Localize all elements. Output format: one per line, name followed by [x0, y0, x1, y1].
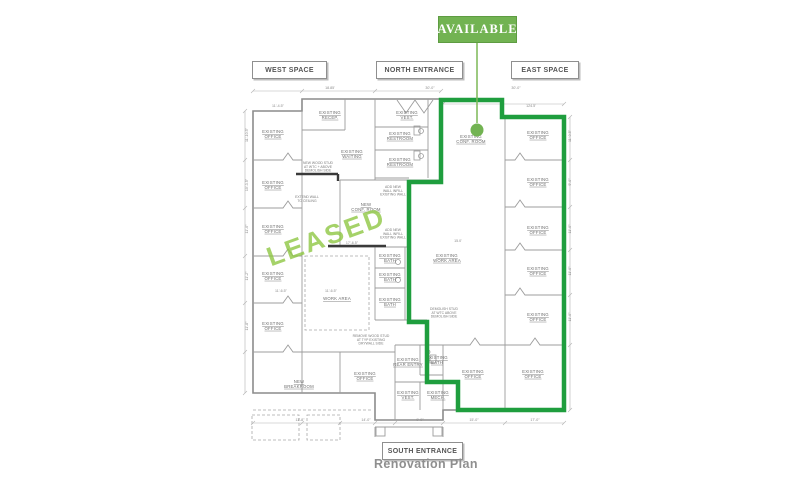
room-label: EXISTINGRESTROOM [387, 157, 414, 167]
dimension-label: 18.85' [325, 86, 335, 90]
room-label: EXISTINGOFFICE [354, 371, 376, 381]
dimension-label: 124.5' [526, 104, 536, 108]
room-label: EXISTINGOFFICE [522, 369, 544, 379]
dimension-label: 11'-10.5" [245, 127, 249, 142]
dimension-label: 9'-0" [568, 178, 572, 186]
room-label: EXISTINGRECEP. [319, 110, 341, 120]
room-label: EXISTINGOFFICE [527, 130, 549, 140]
dimension-label: 10'-3.5" [245, 178, 249, 191]
dimension-label: 15.0' [454, 239, 462, 243]
room-label: EXISTINGMECH. [427, 390, 449, 400]
dimension-label: 11'-8" [296, 418, 306, 422]
dimension-label: 11'-0" [245, 224, 249, 234]
dimension-label: 14'-0" [361, 418, 371, 422]
room-label: EXISTINGWAITING [341, 149, 363, 159]
room-label: EXISTINGOFFICE [527, 225, 549, 235]
dimension-label: 11'-6.5" [275, 289, 288, 293]
dimension-label: 9'-0" [416, 418, 424, 422]
plan-note: NEW WOOD STUDAT WTC + ABOVEDEMOLISH SIDE [303, 161, 333, 173]
dimension-label: 11'-8" [245, 321, 249, 331]
room-label: EXISTINGREAR ENTRY [393, 357, 423, 367]
room-label: EXISTINGRESTROOM [387, 131, 414, 141]
room-label: WORK AREA [323, 296, 351, 301]
south-entrance-porch [375, 427, 443, 437]
room-label: EXISTINGVEST. [397, 390, 419, 400]
dimension-label: 17'-0" [530, 418, 540, 422]
dashed-outlines [252, 256, 372, 440]
room-label: EXISTINGOFFICE [462, 369, 484, 379]
room-label: EXISTINGOFFICE [527, 312, 549, 322]
room-label: EXISTINGOFFICE [262, 180, 284, 190]
room-label: EXISTINGCONF. ROOM [456, 134, 486, 144]
available-leader [471, 41, 484, 137]
dimension-label: 11'-0" [568, 224, 572, 234]
available-tag: AVAILABLE [438, 16, 517, 43]
dimension-label: 15'-0" [469, 418, 479, 422]
room-label: EXISTINGOFFICE [527, 177, 549, 187]
room-label: EXISTINGWORK AREA [433, 253, 461, 263]
dimension-label: 30'-0" [511, 86, 521, 90]
dimension-label: 11'-0" [568, 312, 572, 322]
east-space-label: EAST SPACE [511, 61, 579, 79]
plan-note: EXTEND WALLTO CEILING [295, 195, 319, 203]
dimension-label: 11'-4.5" [272, 104, 285, 108]
west-space-label: WEST SPACE [252, 61, 327, 79]
dimension-label: 30'-0" [425, 86, 435, 90]
room-label: EXISTINGBATH [379, 297, 401, 307]
room-label: EXISTINGOFFICE [262, 321, 284, 331]
room-label: NEWBREAKROOM [284, 379, 314, 389]
renovation-plan-canvas: EXISTINGOFFICEEXISTINGOFFICEEXISTINGOFFI… [0, 0, 809, 498]
north-entrance-label: NORTH ENTRANCE [376, 61, 463, 79]
plan-caption: Renovation Plan [374, 457, 478, 471]
dimension-label: 11'-6.5" [325, 289, 338, 293]
dimension-label: 11'-0" [568, 266, 572, 276]
room-label: EXISTINGOFFICE [262, 129, 284, 139]
plan-note: REMOVE WOOD STUDAT TYP EXISTINGDRYWALL S… [353, 334, 390, 346]
plan-note: ADD NEWWALL INFILLEXISTING WALL [380, 185, 406, 197]
plan-note: DEMOLISH STUDAT WTC ABOVEDEMOLISH SIDE [430, 307, 458, 319]
dimension-label: 11'-2" [245, 271, 249, 281]
room-label: EXISTINGBATH [426, 355, 448, 365]
room-label: EXISTINGBATH [379, 253, 401, 263]
room-label: EXISTINGBATH [379, 272, 401, 282]
room-label: EXISTINGOFFICE [527, 266, 549, 276]
room-label: EXISTINGOFFICE [262, 224, 284, 234]
room-label: EXISTINGVEST. [396, 110, 418, 120]
available-dot [471, 124, 484, 137]
dimension-label: 11'-0.5" [568, 129, 572, 142]
